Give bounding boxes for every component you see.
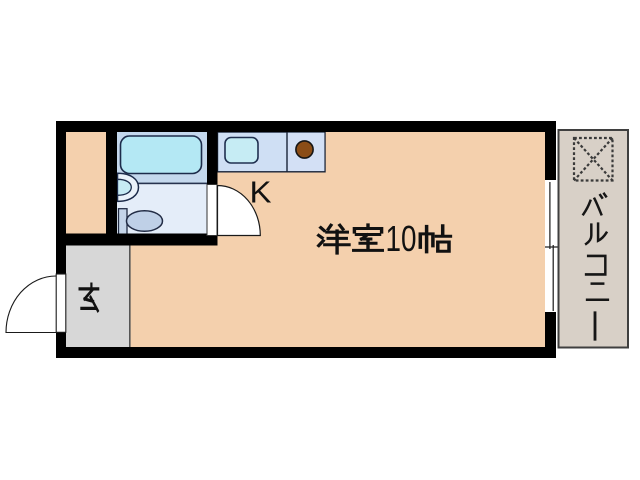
svg-text:K: K — [250, 175, 272, 210]
svg-text:10: 10 — [386, 218, 417, 259]
